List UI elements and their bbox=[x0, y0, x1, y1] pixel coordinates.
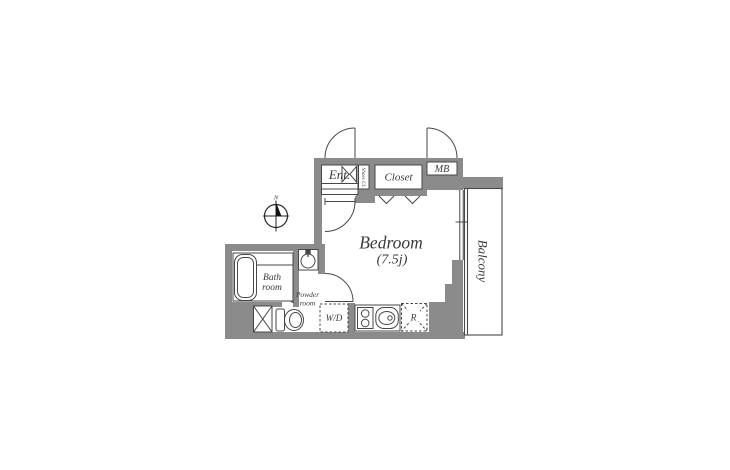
wall-right-step2 bbox=[445, 284, 452, 339]
wall-kitchen-west bbox=[348, 303, 355, 332]
meter-box-label: MB bbox=[434, 164, 449, 175]
toilet-seat bbox=[290, 313, 302, 328]
floor-plan-drawing: N Ent. Shoes Cl. Closet MB Bedroom (7.5j… bbox=[0, 0, 730, 470]
closet-label: Closet bbox=[384, 172, 413, 184]
washing-machine-pan bbox=[254, 306, 273, 332]
wall-hall-stub bbox=[355, 196, 375, 203]
bedroom-door bbox=[325, 198, 355, 232]
entrance-door-swing bbox=[325, 128, 355, 158]
wall-closet-bottom bbox=[356, 189, 427, 196]
wall-right-step3 bbox=[429, 302, 445, 339]
wall-lower-left-block bbox=[225, 302, 253, 339]
bath-label-line2: room bbox=[262, 283, 282, 293]
bedroom-door-arc bbox=[325, 202, 355, 232]
vanity-tap bbox=[305, 250, 310, 255]
compass-north-label: N bbox=[273, 195, 279, 202]
closet-door-mark-left bbox=[379, 196, 394, 204]
vanity-sink bbox=[299, 250, 319, 271]
entrance-label: Ent. bbox=[328, 167, 350, 182]
kitchen-counter bbox=[355, 305, 400, 331]
closet-door-marks bbox=[379, 196, 420, 204]
wall-shoescl-divider bbox=[369, 165, 375, 189]
shoes-closet-label: Shoes Cl. bbox=[360, 168, 366, 188]
wall-right-step1 bbox=[452, 260, 463, 339]
closet-door-mark-right bbox=[405, 196, 420, 204]
mb-door-swing bbox=[427, 128, 457, 158]
bedroom-size-label: (7.5j) bbox=[377, 253, 408, 268]
toilet-tank bbox=[276, 309, 285, 331]
powder-door-arc bbox=[325, 274, 353, 302]
wall-balcony-stub bbox=[457, 177, 503, 189]
bathtub-inner bbox=[238, 258, 254, 298]
bath-label-line1: Bath bbox=[263, 273, 281, 283]
wall-powder-east bbox=[318, 244, 325, 274]
refrigerator-label: R bbox=[410, 314, 417, 324]
washer-dryer-label: W/D bbox=[326, 313, 343, 323]
compass: N bbox=[263, 195, 289, 232]
bedroom-label: Bedroom bbox=[359, 233, 423, 253]
wall-left-upper bbox=[314, 158, 322, 251]
toilet bbox=[276, 309, 304, 331]
mb-door-arc bbox=[427, 128, 457, 158]
powder-label-line2: room bbox=[300, 299, 316, 308]
floor-plan: N Ent. Shoes Cl. Closet MB Bedroom (7.5j… bbox=[0, 0, 730, 470]
entrance-door-arc bbox=[325, 128, 355, 158]
powder-room-door bbox=[325, 274, 353, 302]
balcony-label: Balcony bbox=[475, 240, 490, 283]
stove bbox=[358, 308, 374, 329]
